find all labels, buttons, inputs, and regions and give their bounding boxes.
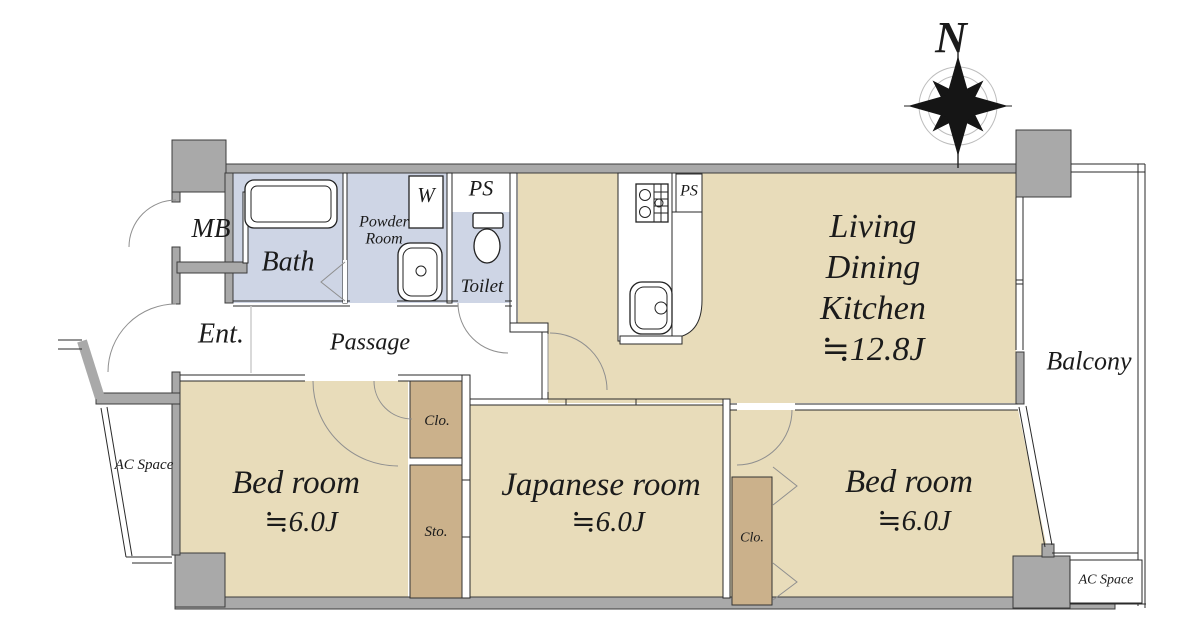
ac-space-right-label: AC Space <box>1077 574 1135 589</box>
balcony-label: Balcony <box>1046 347 1131 374</box>
bathtub-icon <box>245 180 337 228</box>
meter-box-label: MB <box>192 214 231 242</box>
washer-label: W <box>417 185 435 207</box>
compass-rose <box>904 44 1012 168</box>
ldk-label-line3: Kitchen <box>820 288 926 329</box>
ldk-floor <box>518 173 1016 403</box>
closet-left-label: Clo. <box>424 414 449 430</box>
ldk-label-line2: Dining <box>820 247 926 288</box>
powder-sink-icon <box>398 243 442 301</box>
bedroom-right-label: Bed room <box>845 465 973 499</box>
powder-room-label: Powder Room <box>342 214 426 247</box>
japanese-room-size-label: ≒6.0J <box>571 507 644 537</box>
storage-label: Sto. <box>425 525 448 541</box>
bedroom-right-size-label: ≒6.0J <box>877 506 950 536</box>
pillar-bottom-left <box>175 553 225 607</box>
kitchen-sink-icon <box>630 282 672 334</box>
toilet-label: Toilet <box>461 277 504 297</box>
ldk-size-label: ≒12.8J <box>820 329 926 370</box>
compass-north-label: N <box>935 15 967 61</box>
floorplan-canvas: N MB Bath Powder Room W PS Toilet PS Ent… <box>0 0 1200 640</box>
stove-icon <box>636 184 668 222</box>
ldk-label: Living Dining Kitchen ≒12.8J <box>820 206 926 370</box>
bedroom-left-label: Bed room <box>232 466 360 500</box>
bedroom-left-size-label: ≒6.0J <box>264 507 337 537</box>
japanese-room-label: Japanese room <box>501 468 700 502</box>
toilet-icon <box>473 213 503 263</box>
ldk-label-line1: Living <box>820 206 926 247</box>
entrance-label: Ent. <box>198 319 244 348</box>
pillar-bottom-right <box>1013 556 1070 608</box>
ac-space-left-label: AC Space <box>114 458 174 474</box>
pipe-space-top-label: PS <box>469 178 493 201</box>
closet-right-label: Clo. <box>740 532 764 547</box>
passage-label: Passage <box>330 331 410 356</box>
pillar-top-right <box>1016 130 1071 197</box>
pipe-space-kitchen-label: PS <box>680 184 698 201</box>
bath-label: Bath <box>262 247 315 276</box>
pillar-top-left <box>172 140 226 192</box>
floorplan-drawing <box>0 0 1200 640</box>
